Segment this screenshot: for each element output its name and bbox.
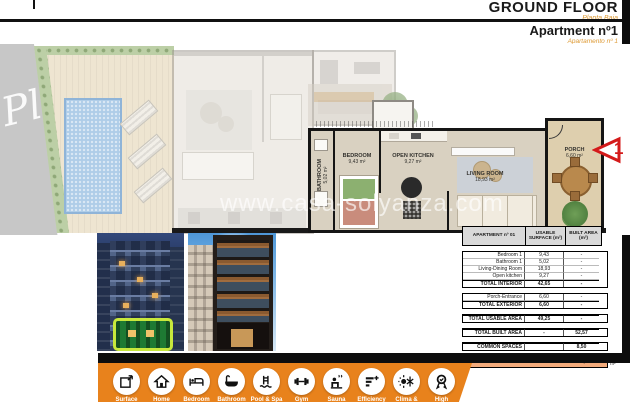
site-watermark: www.casa-solyanza.com [220, 190, 504, 218]
table-row: COMMON SPACES8,50 [463, 343, 607, 350]
porch-plant [562, 201, 588, 227]
day-facade-photo [188, 233, 276, 351]
efficiency-icon [358, 368, 385, 395]
table-cell: 9,27 [525, 273, 564, 280]
apartment-title: Apartment nº1 [529, 24, 618, 38]
home-icon [148, 368, 175, 395]
sauna-icon [323, 368, 350, 395]
entrance-number: 1 [614, 139, 623, 159]
header-divider [0, 19, 630, 22]
table-cell [525, 343, 564, 350]
entrance-door-arc [549, 125, 563, 139]
table-cell: 5,02 [525, 259, 564, 266]
toilet [314, 139, 328, 151]
table-cell: 49,25 [525, 315, 564, 322]
tv-unit [451, 147, 515, 156]
table-row: TOTAL USABLE AREA49,25- [463, 315, 607, 322]
bottom-divider-bar [98, 353, 630, 363]
bedroom-label: BEDROOM9,43 m² [335, 153, 379, 165]
table-cell: 8,50 [564, 343, 599, 350]
table-cell: 52,57 [564, 329, 599, 336]
table-group: TOTAL BUILT AREA-52,57 [462, 328, 608, 337]
table-group: Bedroom 19,43-Bathroom 15,02-Living-Dini… [462, 251, 608, 288]
table-header-row: APARTMENT nº 01USABLE SURFACE (m²)BUILT … [462, 226, 608, 246]
table-row: TOTAL BUILT AREA-52,57 [463, 329, 607, 336]
table-cell: Bathroom 1 [463, 259, 525, 266]
table-row: Living-Dining Room18,93- [463, 266, 607, 273]
table-header-cell: APARTMENT nº 01 [462, 226, 526, 246]
table-cell: TOTAL INTERIOR [463, 280, 525, 287]
table-cell: 6,60 [525, 301, 564, 308]
table-cell: - [564, 280, 599, 287]
table-cell: 9,43 [525, 252, 564, 259]
table-group: COMMON SPACES8,50 [462, 342, 608, 351]
pool-icon [253, 368, 280, 395]
table-cell: - [525, 329, 564, 336]
main-building-day [213, 235, 273, 351]
table-cell: TOTAL EXTERIOR [463, 301, 525, 308]
bath-icon [218, 368, 245, 395]
table-cell: - [564, 259, 599, 266]
ground-floor-highlight [113, 318, 173, 351]
surface-icon [113, 368, 140, 395]
table-cell: TOTAL USABLE AREA [463, 315, 525, 322]
table-group: Porch-Entrance6,60-TOTAL EXTERIOR6,60- [462, 293, 608, 309]
table-cell: - [564, 315, 599, 322]
neighbor-building [188, 245, 213, 351]
night-facade-photo [97, 233, 184, 351]
table-cell: Open kitchen [463, 273, 525, 280]
table-cell: 42,65 [525, 280, 564, 287]
clima-icon [393, 368, 420, 395]
gym-icon [288, 368, 315, 395]
quality-icon [428, 368, 455, 395]
table-row: TOTAL EXTERIOR6,60- [463, 301, 607, 308]
table-row: Open kitchen9,27- [463, 273, 607, 280]
amenities-banner: SurfaceHomeBedroomBathroomPool & SpaGymS… [98, 363, 472, 402]
table-row: Porch-Entrance6,60- [463, 294, 607, 301]
table-cell: 6,60 [525, 294, 564, 301]
table-group: TOTAL USABLE AREA49,25- [462, 314, 608, 323]
table-header-cell: BUILT AREA (m²) [566, 226, 602, 246]
kitchen-counter [381, 131, 447, 142]
table-cell: - [564, 266, 599, 273]
swimming-pool [64, 98, 122, 214]
bed-icon [183, 368, 210, 395]
table-cell: Porch-Entrance [463, 294, 525, 301]
table-cell: - [564, 294, 599, 301]
table-cell: - [564, 273, 599, 280]
table-cell: - [564, 252, 599, 259]
bathroom-label: BATHROOM5,02 m² [317, 155, 329, 195]
areas-table: APARTMENT nº 01USABLE SURFACE (m²)BUILT … [462, 226, 608, 368]
open-kitchen-label: OPEN KITCHEN9,27 m² [381, 153, 445, 165]
floor-plan: Pl [0, 44, 630, 235]
apartment-header: Apartment nº1 Apartamento nº 1 [529, 24, 618, 46]
table-row: Bathroom 15,02- [463, 259, 607, 266]
table-cell: Living-Dining Room [463, 266, 525, 273]
living-room-label: LIVING ROOM18,93 m² [457, 171, 513, 183]
dimension-ticks [316, 121, 434, 127]
neighbor-building [97, 243, 110, 351]
garden-strip-top [36, 46, 174, 55]
table-row: Bedroom 19,43- [463, 252, 607, 259]
brochure-page: GROUND FLOOR Planta Baja Apartment nº1 A… [0, 0, 630, 402]
amenity-label: High [421, 397, 462, 402]
table-cell: 18,93 [525, 266, 564, 273]
table-row: TOTAL INTERIOR42,65- [463, 280, 607, 287]
page-title: GROUND FLOOR [489, 0, 618, 15]
table-cell: - [564, 301, 599, 308]
table-cell: Bedroom 1 [463, 252, 525, 259]
entrance-marker: 1 [592, 136, 630, 166]
table-cell: COMMON SPACES [463, 343, 525, 350]
table-cell: TOTAL BUILT AREA [463, 329, 525, 336]
crop-mark [33, 0, 35, 9]
table-header-cell: USABLE SURFACE (m²) [526, 226, 566, 246]
